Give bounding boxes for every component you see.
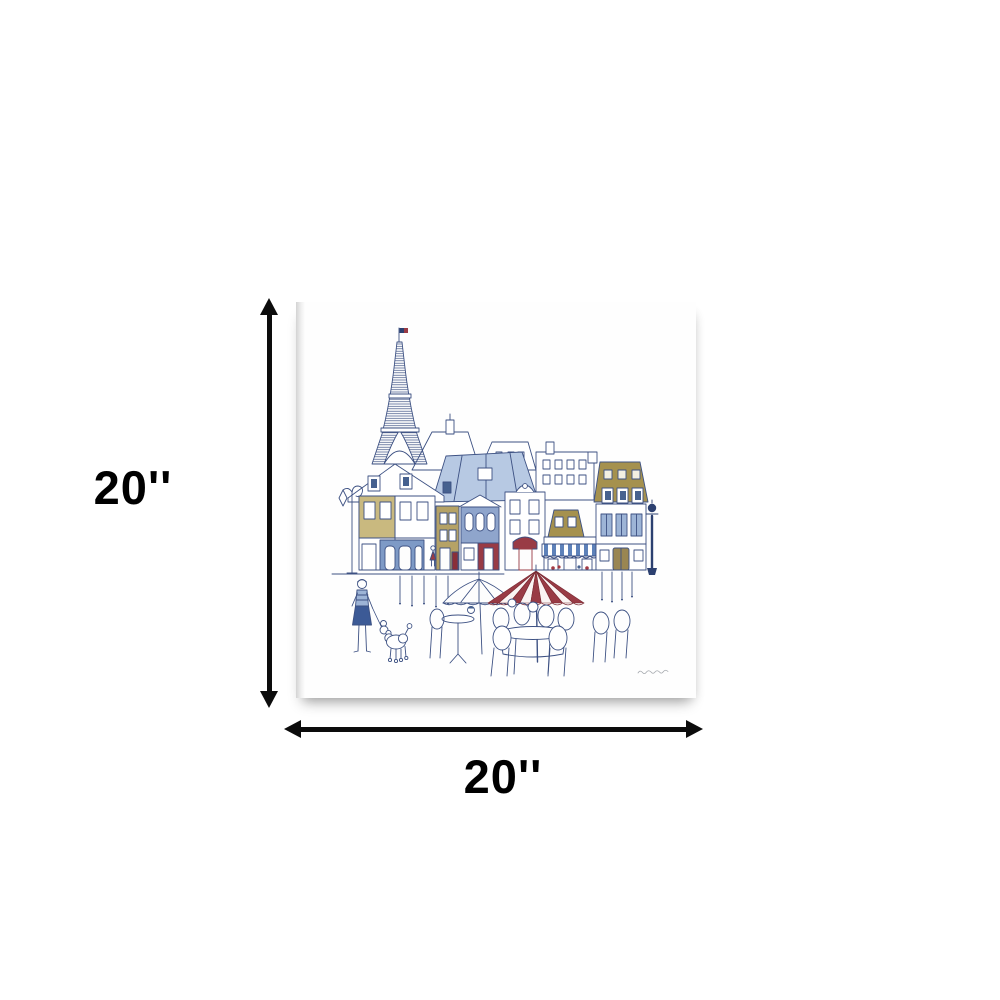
street-lamp-right bbox=[646, 500, 658, 575]
arrowhead-right-icon bbox=[686, 720, 703, 738]
canvas-art-print bbox=[296, 302, 696, 698]
arrowhead-down-icon bbox=[260, 691, 278, 708]
width-dimension-label: 20'' bbox=[413, 751, 593, 803]
artist-signature bbox=[638, 670, 668, 673]
width-arrow-shaft bbox=[300, 727, 687, 732]
cafe-tables-chairs bbox=[430, 599, 630, 676]
blue-shutter-building bbox=[596, 488, 646, 570]
eiffel-tower bbox=[372, 328, 427, 464]
height-dimension-label: 20'' bbox=[58, 462, 208, 514]
striped-awning-cafe bbox=[542, 510, 598, 570]
height-arrow-shaft bbox=[267, 312, 272, 693]
woman-walking-poodle bbox=[352, 580, 412, 663]
gold-shop-building bbox=[436, 506, 459, 570]
product-dimension-image: 20'' 20'' bbox=[0, 0, 1000, 1000]
arrowhead-left-icon bbox=[284, 720, 301, 738]
red-awning-building bbox=[505, 484, 545, 570]
corner-shop-building bbox=[348, 464, 444, 570]
blue-arch-building bbox=[459, 495, 501, 570]
paris-street-artwork bbox=[296, 302, 696, 698]
